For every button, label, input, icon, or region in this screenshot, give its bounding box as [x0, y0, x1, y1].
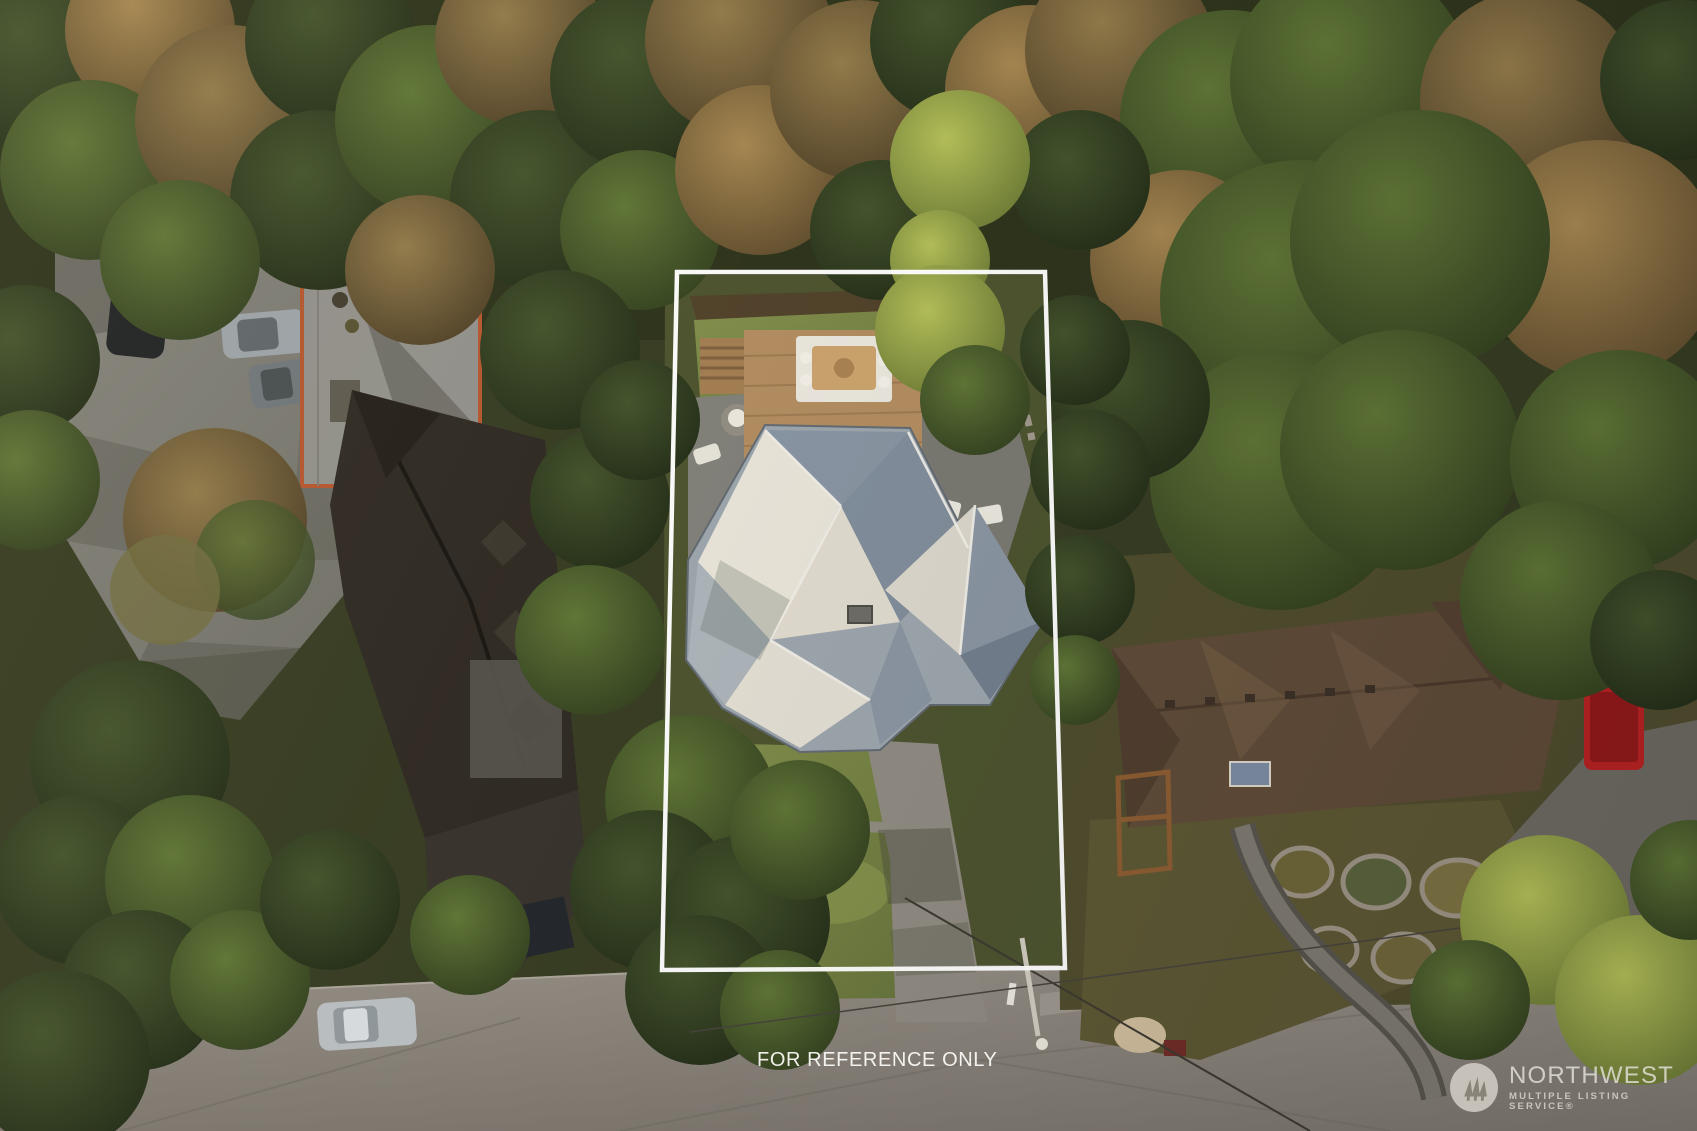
reference-only-watermark: FOR REFERENCE ONLY [757, 1049, 997, 1072]
deck-stairs [700, 338, 746, 394]
logo-tagline-text: MULTIPLE LISTING SERVICE® [1509, 1092, 1697, 1111]
nwmls-watermark-logo: NORTHWEST MULTIPLE LISTING SERVICE® [1450, 1063, 1697, 1112]
street-light [1036, 1038, 1048, 1050]
parked-car-street [316, 997, 417, 1052]
logo-text: NORTHWEST MULTIPLE LISTING SERVICE® [1509, 1064, 1697, 1111]
chimney [848, 606, 872, 623]
skylight [1230, 762, 1270, 786]
yellow-conifer [890, 90, 1030, 230]
logo-brand-text: NORTHWEST [1509, 1064, 1697, 1088]
aerial-photo-scene [0, 0, 1697, 1131]
logo-disc [1450, 1063, 1498, 1112]
aerial-listing-photo: FOR REFERENCE ONLY NORTHWEST MULTIPLE LI… [0, 0, 1697, 1131]
pine-trees-icon [1457, 1071, 1491, 1105]
